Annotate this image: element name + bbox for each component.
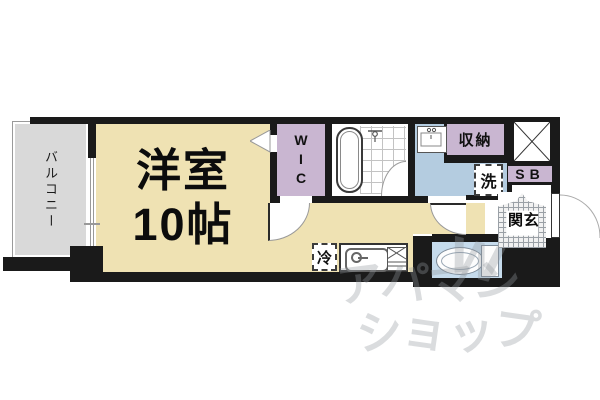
bathroom-area <box>332 124 408 196</box>
toilet-cistern <box>481 245 499 277</box>
bathtub-icon <box>336 127 363 193</box>
entrance-area: 玄関 <box>498 192 546 248</box>
balcony-label: バルコニー <box>13 122 88 257</box>
toilet-room <box>432 242 502 278</box>
wall <box>325 124 332 196</box>
wall <box>408 117 415 203</box>
stove-icon <box>387 247 407 271</box>
shower-faucet-icon <box>365 128 385 144</box>
wic-label: WIC <box>277 124 325 196</box>
corridor-area-2 <box>466 203 485 234</box>
wall <box>432 234 502 242</box>
main-room-label: 洋室 10帖 <box>96 124 270 272</box>
main-room-label-line1: 洋室 <box>136 144 230 198</box>
wall <box>88 117 96 158</box>
pipe-space-box <box>512 120 552 163</box>
wall <box>96 272 426 282</box>
wall <box>270 196 280 203</box>
wall <box>30 117 558 124</box>
wall <box>444 155 508 163</box>
shoe-box-label: SB <box>508 163 552 185</box>
floorplan: 洗 冷 玄関 洋室 10帖 バルコニー WIC 収納 <box>0 0 600 400</box>
faucet-stem <box>358 257 368 259</box>
entrance-label: 玄関 <box>506 211 538 236</box>
wall <box>413 236 432 287</box>
washbasin-icon <box>417 126 447 153</box>
watermark-line2: ショップ <box>356 294 540 360</box>
washer-label: 洗 <box>480 168 496 192</box>
wall <box>545 238 560 287</box>
balcony-window <box>88 158 96 246</box>
toilet-icon <box>436 247 484 275</box>
kitchen-counter <box>339 243 408 272</box>
storage-label: 収納 <box>447 124 504 155</box>
main-room-label-line2: 10帖 <box>132 198 233 252</box>
x-cross-icon <box>514 122 550 161</box>
entrance-door-arc <box>559 194 600 239</box>
wall <box>504 117 512 163</box>
wall <box>270 117 277 135</box>
fridge-label: 冷 <box>317 247 332 268</box>
wall <box>551 117 560 193</box>
fridge-box: 冷 <box>312 243 337 271</box>
